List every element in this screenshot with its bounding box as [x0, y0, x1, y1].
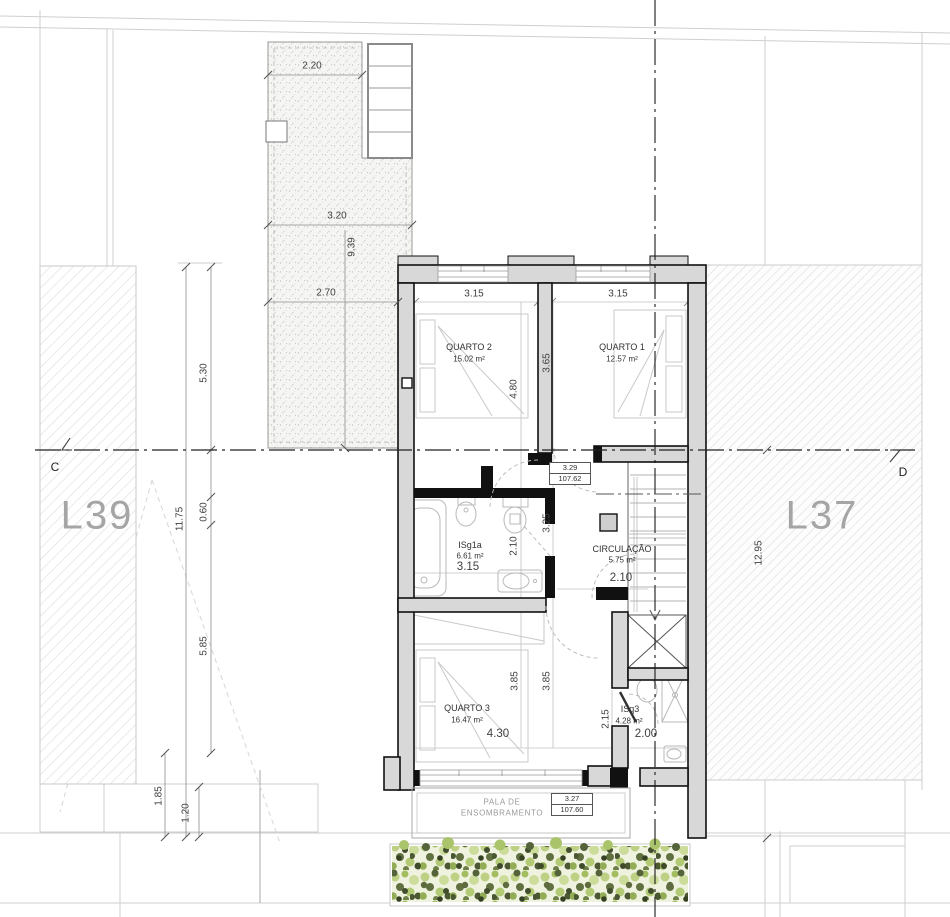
room-area-isq3: 4.28 m²: [615, 717, 642, 726]
section-marker-d: D: [899, 465, 908, 479]
room-label-quarto2: QUARTO 2: [446, 342, 492, 352]
room-area-isg1a: 6.61 m²: [456, 552, 483, 561]
level-height: 3.29: [550, 463, 590, 473]
room-label-quarto3: QUARTO 3: [444, 703, 490, 713]
level-elevation: 107.60: [552, 804, 592, 815]
room-label-isq3: ISq3: [621, 704, 640, 714]
dim-bath-width: 3.15: [457, 561, 479, 573]
lot-label-l39: L39: [61, 494, 134, 539]
wall-step-left: [384, 757, 400, 790]
dim-bath-depth: 2.10: [509, 536, 520, 555]
dim-isq3-depth: 2.15: [601, 709, 612, 728]
wall-circ-bottom: [596, 587, 628, 600]
room-area-circulacao: 5.75 m²: [608, 556, 635, 565]
floor-plan-drawing: L39 L37 C D 2.20 3.20 9.39 2.70 5.30 11.…: [0, 0, 950, 917]
dim-isq3-width: 2.00: [635, 728, 657, 740]
dim-q3-depth1: 3.85: [510, 671, 521, 690]
circulation-column: [600, 514, 617, 531]
room-label-isg1a: ISg1a: [458, 540, 482, 550]
dim-terrace-len: 9.39: [347, 237, 358, 256]
level-height: 3.27: [552, 794, 592, 804]
dim-left-120: 1.20: [181, 803, 192, 822]
room-label-circulacao: CIRCULAÇÃO: [592, 544, 651, 554]
room-area-quarto3: 16.47 m²: [451, 716, 483, 725]
canopy-label-line1: PALA DE: [484, 798, 521, 807]
dim-left-185: 1.85: [154, 786, 165, 805]
wall-left: [398, 283, 414, 790]
dim-q2-depth: 4.80: [509, 379, 520, 398]
wall-box-left: [402, 378, 412, 388]
wall-isq3-top: [628, 668, 688, 680]
level-marker-upper: 3.29 107.62: [549, 462, 591, 485]
dim-left-530: 5.30: [199, 363, 210, 382]
wall-q1-bottom: [594, 446, 688, 462]
wall-q3-isq3-upper: [612, 612, 628, 688]
dim-left-060: 0.60: [199, 502, 210, 521]
terrace-drain-box: [266, 121, 287, 142]
room-area-quarto1: 12.57 m²: [606, 355, 638, 364]
dim-circ-width: 2.10: [610, 572, 632, 584]
dim-left-585: 5.85: [199, 636, 210, 655]
window-quarto1: [576, 266, 650, 282]
dim-terrace-low: 2.70: [316, 288, 335, 299]
dim-q1-width: 3.15: [608, 289, 627, 300]
stair-void-cross: [628, 615, 686, 668]
dim-terrace-mid: 3.20: [327, 211, 346, 222]
dim-hall-depth: 3.25: [542, 513, 553, 532]
level-elevation: 107.62: [550, 473, 590, 484]
dim-q1-depth: 3.65: [542, 353, 553, 372]
room-area-quarto2: 15.02 m²: [453, 355, 485, 364]
level-marker-lower: 3.27 107.60: [551, 793, 593, 816]
sliding-door-quarto3: [420, 770, 582, 786]
dim-q3-width: 4.30: [487, 728, 509, 740]
dim-q2-width: 3.15: [464, 289, 483, 300]
plan-linework: [0, 0, 950, 917]
terrace: [266, 42, 412, 448]
wall-bath-top: [414, 488, 545, 498]
terrace-stair-block: [368, 44, 412, 158]
wall-circ-left-lower: [545, 556, 555, 598]
dim-terrace-top: 2.20: [302, 61, 321, 72]
wall-bottom-right: [640, 768, 688, 786]
wall-pier-pala: [610, 768, 628, 788]
wall-q3-isq3-lower: [612, 726, 628, 768]
dim-q3-depth2: 3.85: [542, 671, 553, 690]
dim-right-1295: 12.95: [754, 540, 765, 565]
dim-left-1175: 11.75: [175, 507, 186, 531]
room-label-quarto1: QUARTO 1: [599, 342, 645, 352]
canopy-label-line2: ENSOMBRAMENTO: [461, 809, 543, 818]
hedge: [390, 837, 690, 906]
wall-right: [688, 283, 706, 838]
wall-q3-top: [398, 598, 546, 612]
lot-label-l37: L37: [786, 494, 859, 539]
window-quarto2: [438, 266, 508, 282]
section-marker-c: C: [51, 460, 60, 474]
